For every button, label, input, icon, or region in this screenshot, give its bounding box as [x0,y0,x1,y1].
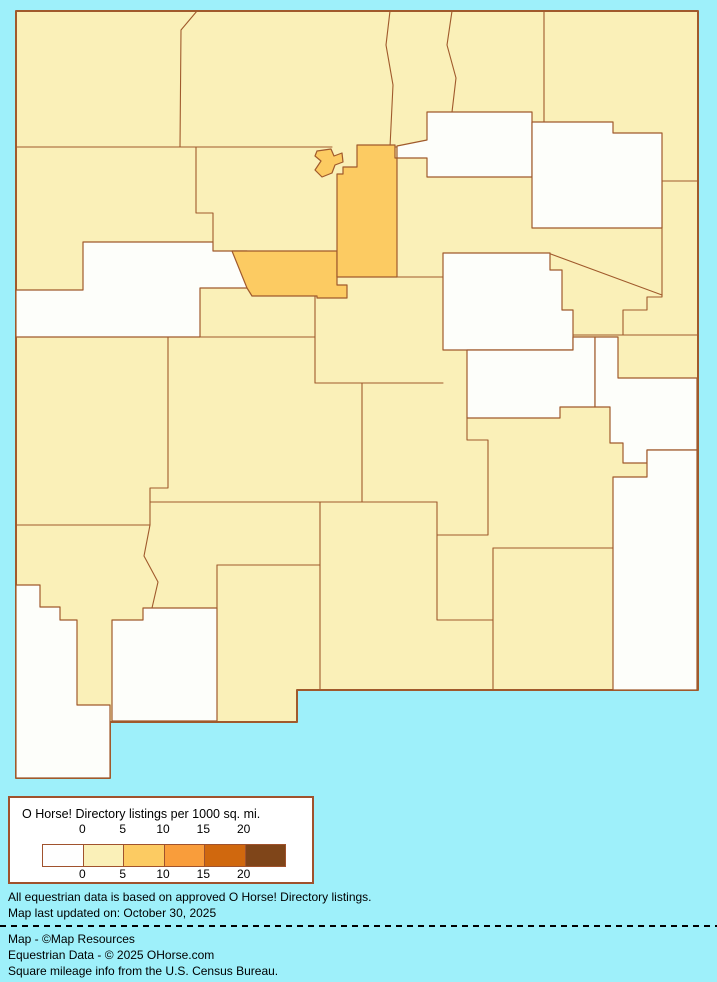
legend-scale-top: 05101520 [10,822,312,836]
credit-map: Map - ©Map Resources [8,932,135,946]
legend-scale-bottom: 05101520 [10,867,312,881]
county-bernalillo [232,251,347,298]
legend-tick-label: 20 [237,822,250,836]
county-lea [613,450,697,690]
legend-color-ramp [42,844,286,867]
county-luna [112,608,217,721]
legend-color-bin-5 [246,845,286,866]
legend-tick-label: 0 [79,867,86,881]
legend-tick-label: 0 [79,822,86,836]
legend-tick-label: 10 [156,822,169,836]
legend-tick-label: 5 [119,867,126,881]
legend-color-bin-1 [84,845,125,866]
legend-tick-label: 15 [197,867,210,881]
legend-color-bin-4 [205,845,246,866]
credit-equestrian-data: Equestrian Data - © 2025 OHorse.com [8,948,214,962]
credit-square-mileage: Square mileage info from the U.S. Census… [8,964,278,978]
legend-color-bin-3 [165,845,206,866]
legend-box: O Horse! Directory listings per 1000 sq.… [8,796,314,884]
county-harding [532,122,662,228]
legend-color-bin-0 [43,845,84,866]
page-background: O Horse! Directory listings per 1000 sq.… [0,0,717,982]
new-mexico-choropleth-map [0,0,717,790]
legend-tick-label: 10 [156,867,169,881]
legend-color-bin-2 [124,845,165,866]
footnote-last-updated: Map last updated on: October 30, 2025 [8,906,216,920]
legend-title: O Horse! Directory listings per 1000 sq.… [22,807,260,821]
legend-tick-label: 15 [197,822,210,836]
legend-tick-label: 5 [119,822,126,836]
footnote-data-source: All equestrian data is based on approved… [8,890,372,904]
dashed-divider [0,925,717,927]
legend-tick-label: 20 [237,867,250,881]
